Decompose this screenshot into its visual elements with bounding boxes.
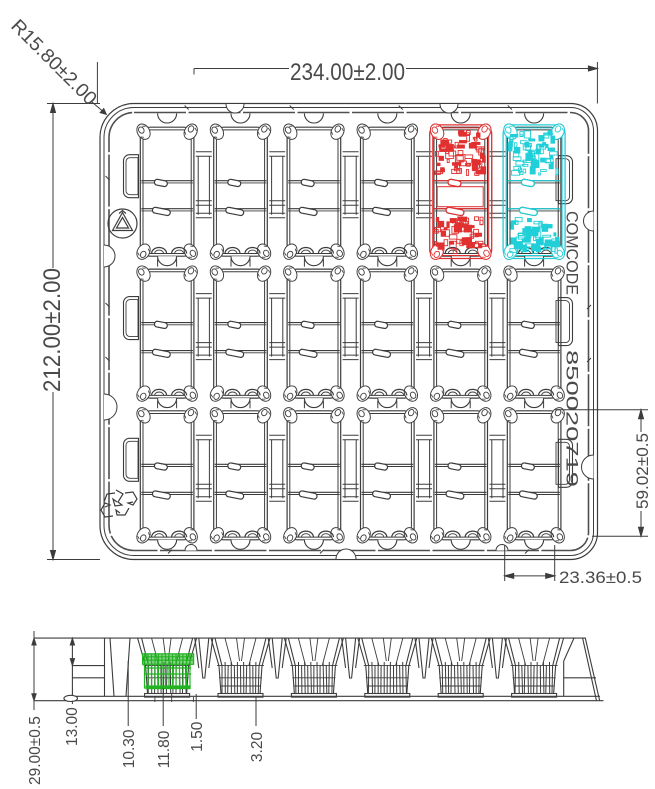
svg-text:29.00±0.5: 29.00±0.5 — [27, 716, 44, 785]
svg-text:11.80: 11.80 — [156, 730, 173, 768]
svg-text:COMCODE: COMCODE — [563, 211, 582, 295]
svg-text:23.36±0.5: 23.36±0.5 — [559, 568, 642, 587]
svg-text:13.00: 13.00 — [64, 707, 81, 746]
svg-text:59.02±0.5: 59.02±0.5 — [633, 433, 652, 509]
svg-text:1.50: 1.50 — [189, 721, 206, 752]
svg-text:10.30: 10.30 — [121, 729, 138, 768]
svg-text:234.00±2.00: 234.00±2.00 — [290, 59, 405, 86]
svg-text:212.00±2.00: 212.00±2.00 — [39, 268, 66, 392]
svg-text:850020719: 850020719 — [563, 350, 582, 487]
svg-text:3.20: 3.20 — [249, 732, 266, 763]
